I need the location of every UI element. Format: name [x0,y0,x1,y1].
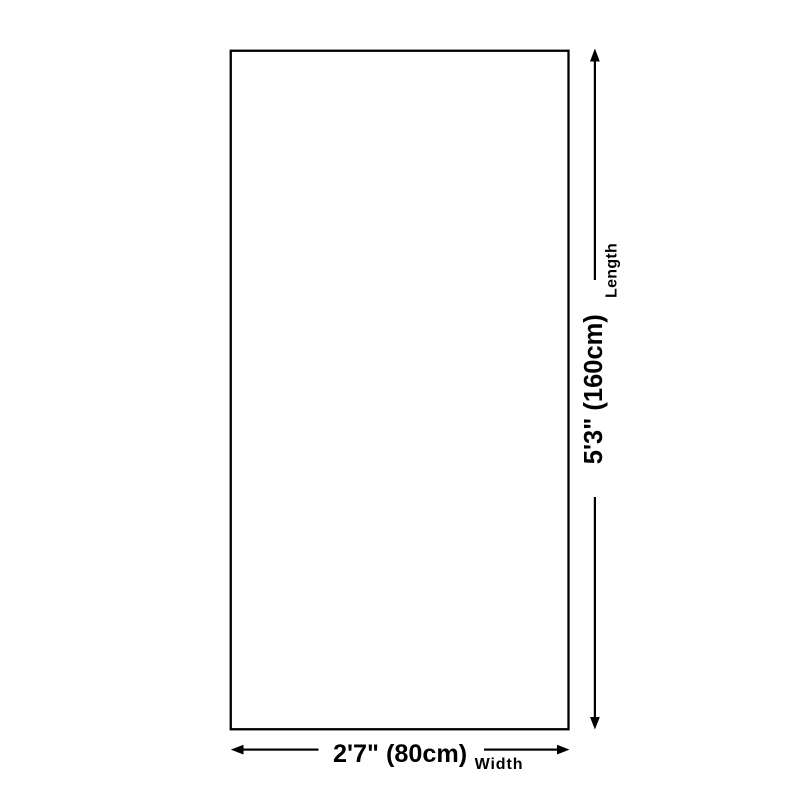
svg-text:5'3" (160cm): 5'3" (160cm) [580,314,608,464]
svg-text:Length: Length [604,243,621,298]
svg-text:Width: Width [475,756,524,773]
svg-text:2'7" (80cm): 2'7" (80cm) [333,740,467,768]
